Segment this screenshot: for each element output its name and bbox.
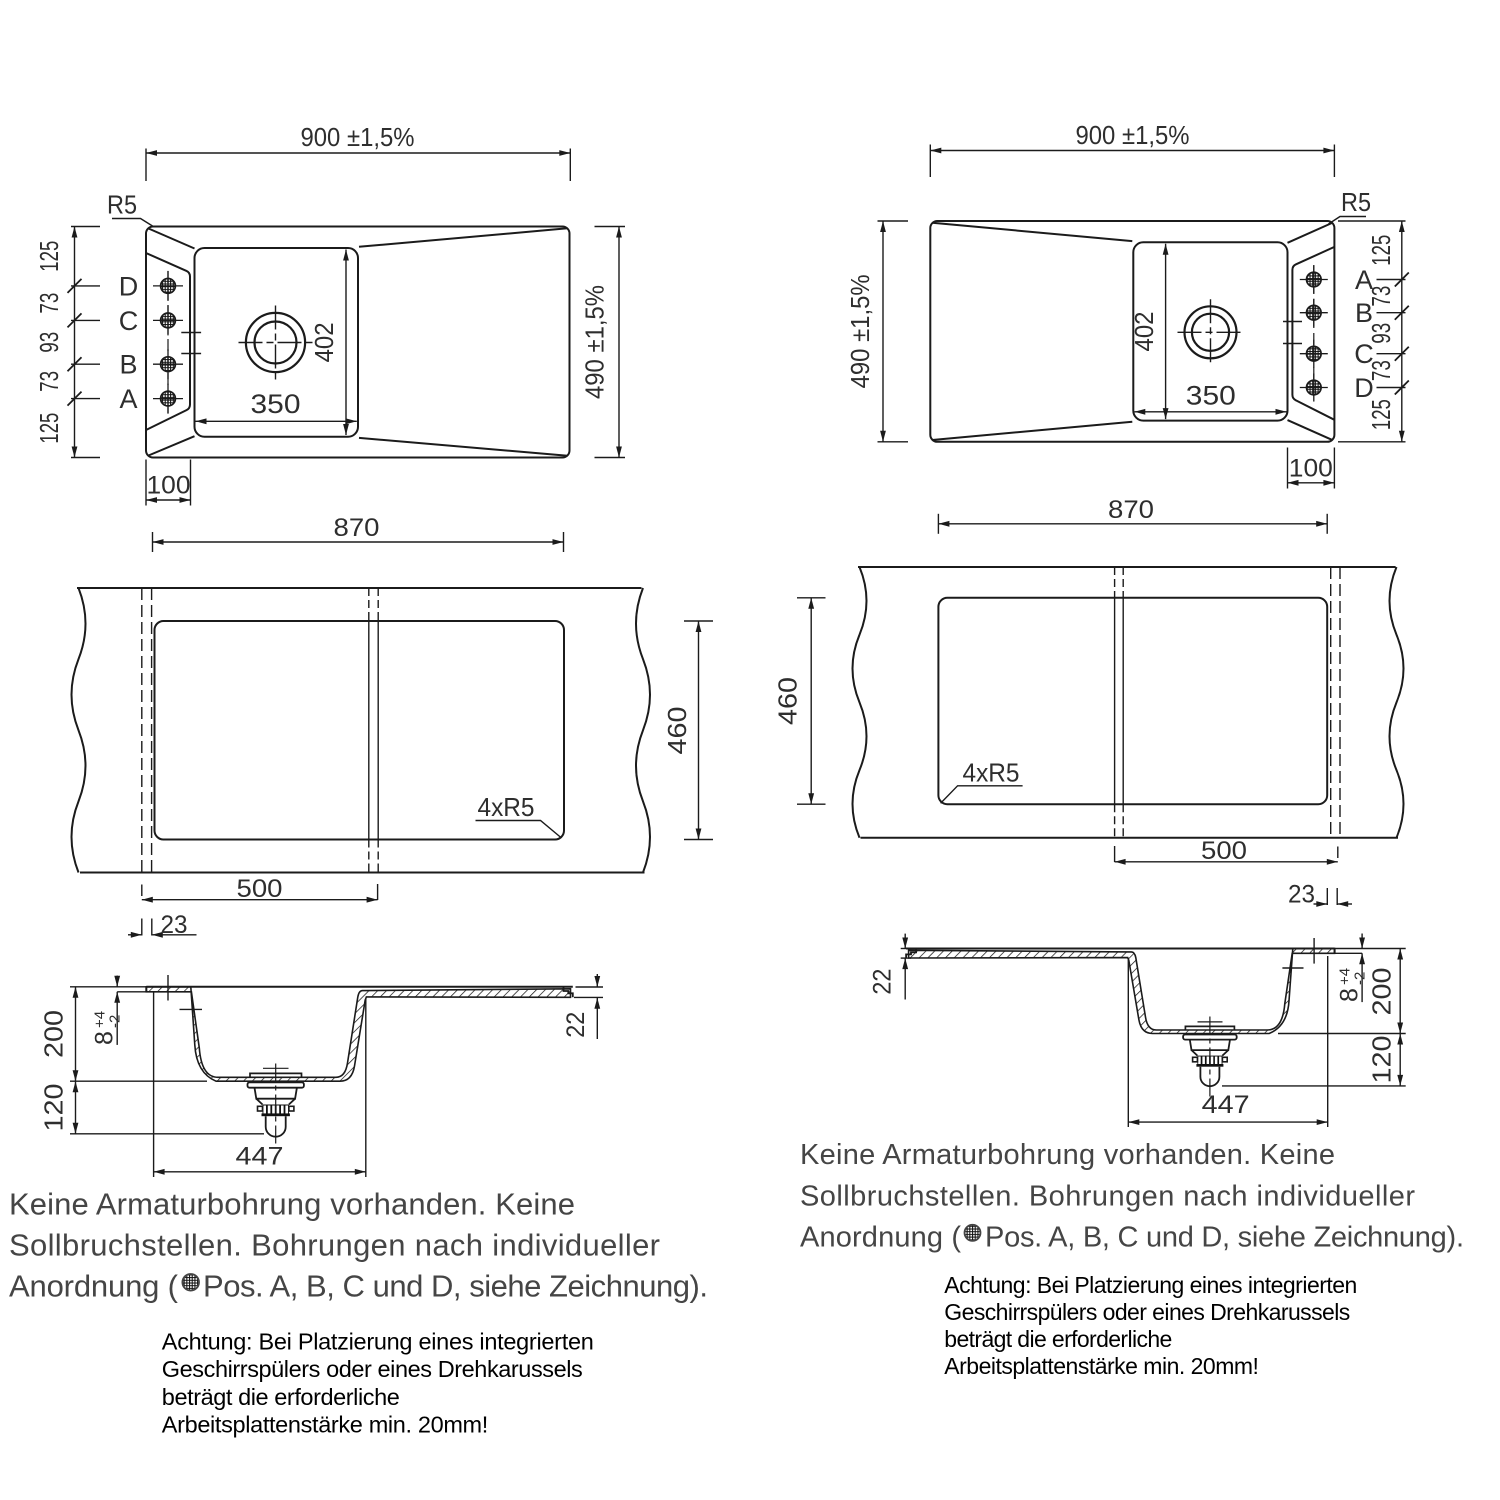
svg-text:200: 200 — [39, 1010, 69, 1058]
svg-text:-2: -2 — [107, 1015, 124, 1028]
svg-text:490 ±1,5%: 490 ±1,5% — [580, 285, 610, 399]
svg-text:900 ±1,5%: 900 ±1,5% — [301, 122, 415, 152]
svg-text:447: 447 — [236, 1143, 284, 1171]
svg-text:Keine Armaturbohrung vorhanden: Keine Armaturbohrung vorhanden. Keine — [9, 1187, 575, 1222]
svg-text:Pos. A, B, C und D, siehe Zeic: Pos. A, B, C und D, siehe Zeichnung). — [985, 1222, 1464, 1254]
svg-text:Sollbruchstellen. Bohrungen na: Sollbruchstellen. Bohrungen nach individ… — [9, 1228, 660, 1263]
svg-text:4xR5: 4xR5 — [963, 758, 1020, 788]
svg-text:23: 23 — [161, 911, 188, 939]
svg-text:73: 73 — [1366, 286, 1396, 307]
svg-text:73: 73 — [1366, 360, 1396, 381]
svg-text:B: B — [119, 350, 137, 380]
svg-text:Keine Armaturbohrung vorhanden: Keine Armaturbohrung vorhanden. Keine — [800, 1139, 1335, 1171]
svg-text:Geschirrspülers oder eines Dre: Geschirrspülers oder eines Drehkarussels — [162, 1356, 583, 1382]
svg-text:402: 402 — [1129, 312, 1159, 352]
svg-text:Sollbruchstellen. Bohrungen na: Sollbruchstellen. Bohrungen nach individ… — [800, 1181, 1415, 1213]
svg-text:beträgt die erforderliche: beträgt die erforderliche — [162, 1384, 400, 1410]
svg-text:8: 8 — [91, 1031, 119, 1045]
svg-text:D: D — [119, 271, 139, 301]
svg-text:500: 500 — [1201, 837, 1247, 865]
svg-text:Achtung: Bei Platzierung eines: Achtung: Bei Platzierung eines integrier… — [162, 1328, 594, 1354]
svg-text:200: 200 — [1367, 968, 1397, 1016]
svg-text:100: 100 — [1289, 455, 1333, 483]
svg-text:A: A — [119, 384, 137, 414]
svg-text:447: 447 — [1202, 1091, 1250, 1119]
svg-text:93: 93 — [1366, 323, 1396, 344]
svg-text:100: 100 — [147, 472, 191, 500]
svg-text:R5: R5 — [1341, 187, 1371, 217]
svg-text:460: 460 — [662, 707, 692, 755]
svg-text:125: 125 — [1366, 399, 1396, 430]
svg-text:Arbeitsplattenstärke min. 20mm: Arbeitsplattenstärke min. 20mm! — [944, 1353, 1259, 1379]
svg-text:120: 120 — [39, 1084, 69, 1132]
svg-text:-2: -2 — [1352, 972, 1369, 985]
svg-text:900 ±1,5%: 900 ±1,5% — [1076, 120, 1190, 150]
svg-text:125: 125 — [1366, 235, 1396, 266]
svg-text:Geschirrspülers oder eines Dre: Geschirrspülers oder eines Drehkarussels — [944, 1299, 1350, 1325]
svg-text:22: 22 — [868, 969, 896, 995]
svg-text:120: 120 — [1367, 1036, 1397, 1084]
svg-text:500: 500 — [237, 875, 283, 903]
svg-text:870: 870 — [334, 514, 380, 542]
svg-text:870: 870 — [1108, 496, 1154, 524]
svg-text:22: 22 — [562, 1012, 590, 1038]
svg-text:Arbeitsplattenstärke min. 20mm: Arbeitsplattenstärke min. 20mm! — [162, 1412, 489, 1438]
svg-text:402: 402 — [309, 322, 339, 362]
svg-text:125: 125 — [34, 241, 64, 272]
svg-text:23: 23 — [1288, 881, 1315, 909]
svg-text:R5: R5 — [107, 190, 137, 220]
svg-text:350: 350 — [1186, 381, 1236, 411]
svg-text:4xR5: 4xR5 — [478, 792, 535, 822]
svg-text:8: 8 — [1336, 988, 1364, 1002]
svg-text:Achtung: Bei Platzierung eines: Achtung: Bei Platzierung eines integrier… — [944, 1272, 1357, 1298]
svg-text:Anordnung (: Anordnung ( — [9, 1269, 179, 1304]
svg-text:C: C — [119, 306, 139, 336]
svg-text:73: 73 — [34, 371, 64, 392]
svg-text:460: 460 — [773, 677, 803, 725]
svg-text:Anordnung (: Anordnung ( — [800, 1222, 961, 1254]
svg-text:93: 93 — [34, 332, 64, 353]
svg-text:73: 73 — [34, 293, 64, 314]
svg-text:beträgt die erforderliche: beträgt die erforderliche — [944, 1326, 1172, 1352]
svg-text:490 ±1,5%: 490 ±1,5% — [845, 274, 875, 388]
svg-text:125: 125 — [34, 413, 64, 444]
svg-text:Pos. A, B, C und D, siehe Zeic: Pos. A, B, C und D, siehe Zeichnung). — [203, 1269, 708, 1304]
svg-text:350: 350 — [251, 389, 301, 419]
